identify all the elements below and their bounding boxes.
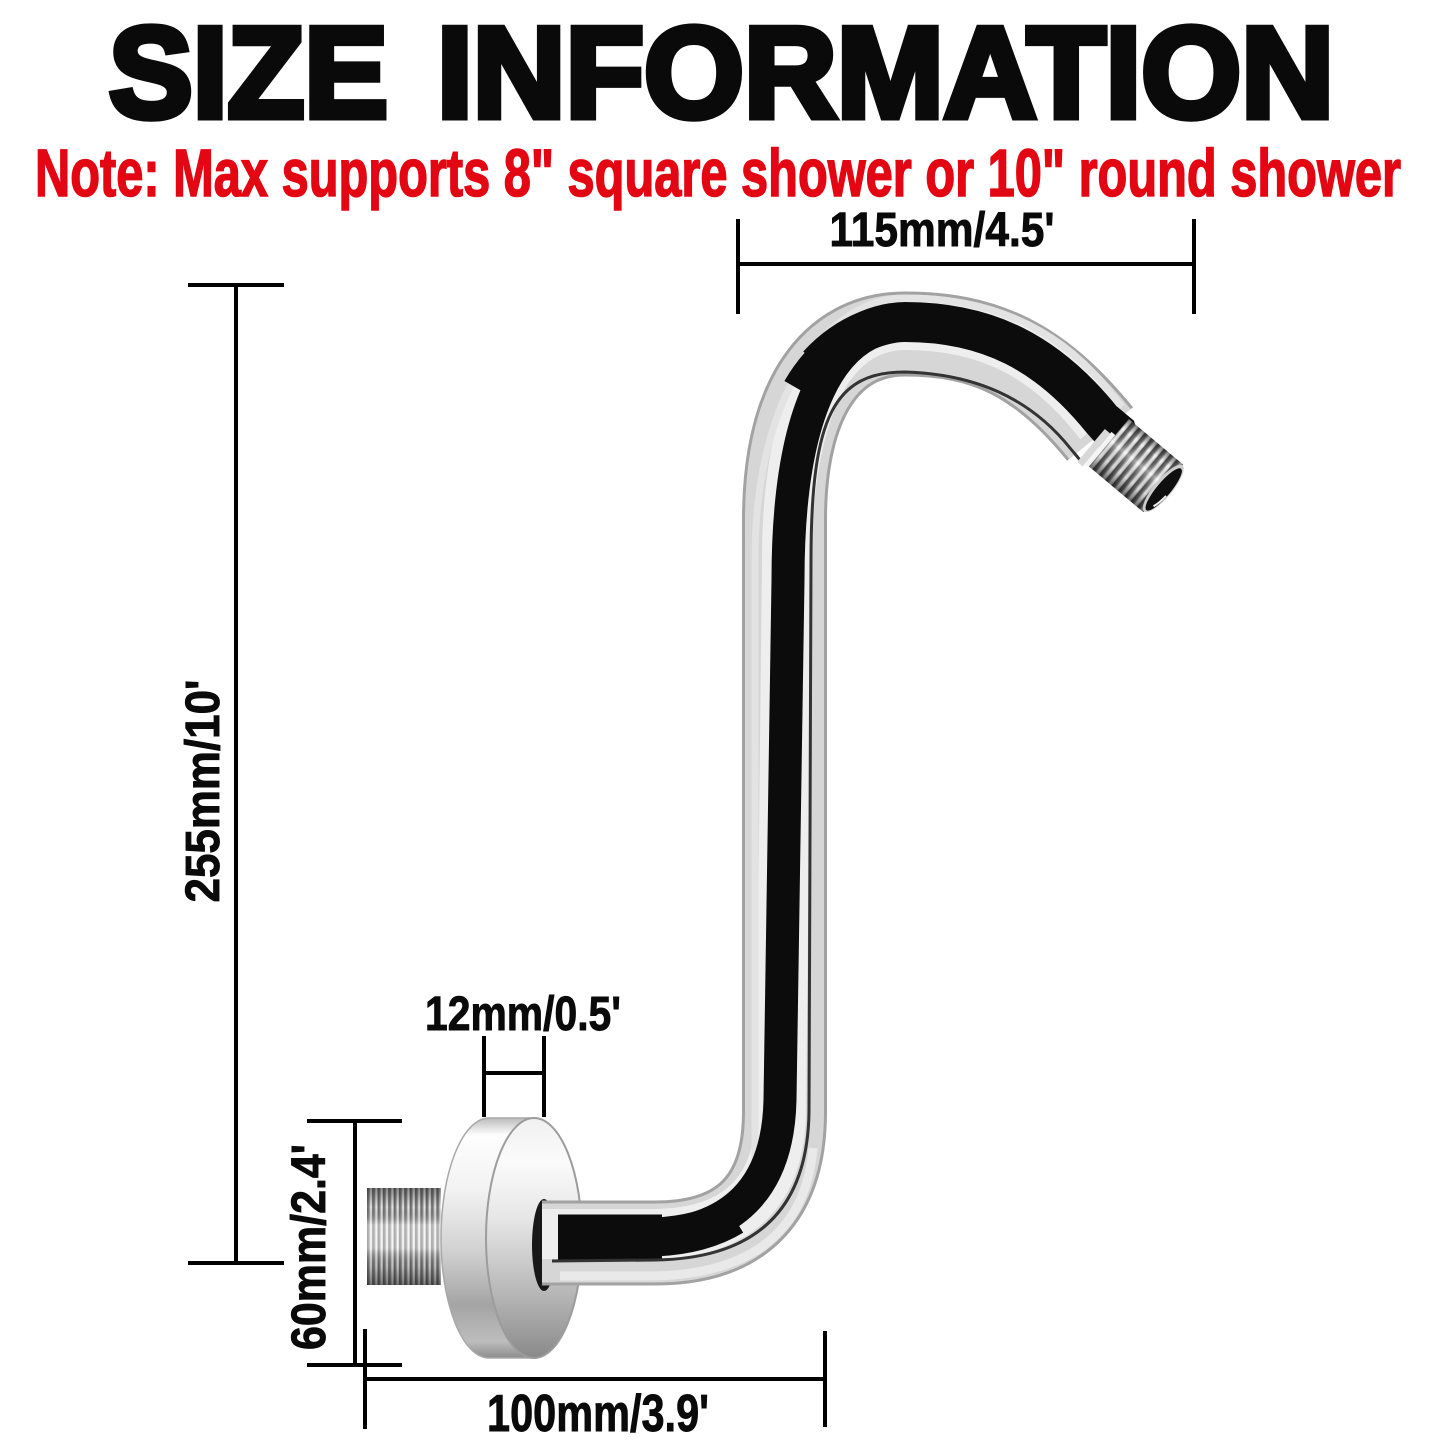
- svg-text:100mm/3.9': 100mm/3.9': [487, 1385, 709, 1443]
- svg-text:SIZE: SIZE: [109, 1, 388, 145]
- svg-text:255mm/10': 255mm/10': [177, 680, 230, 903]
- svg-text:115mm/4.5': 115mm/4.5': [830, 204, 1055, 257]
- svg-text:Note: Max supports 8" square s: Note: Max supports 8" square shower or 1…: [35, 136, 1401, 211]
- svg-text:INFORMATION: INFORMATION: [437, 1, 1334, 145]
- svg-text:12mm/0.5': 12mm/0.5': [425, 988, 621, 1041]
- svg-text:60mm/2.4': 60mm/2.4': [283, 1144, 336, 1350]
